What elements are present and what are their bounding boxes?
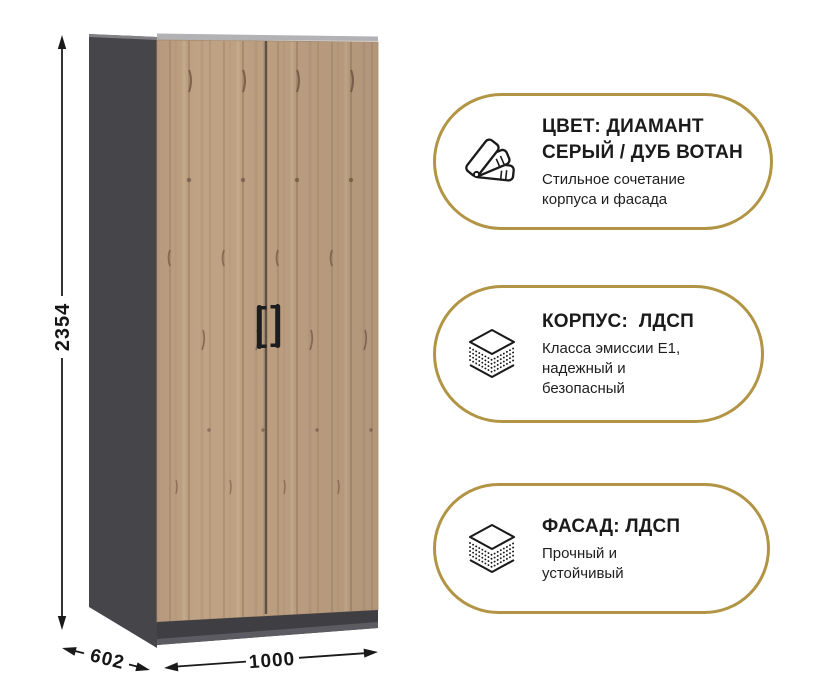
width-dimension-label: 1000 [248,649,296,673]
layers-icon [465,521,519,577]
layers-icon [465,326,519,382]
feature-badge-color: ЦВЕТ: ДИАМАНТ СЕРЫЙ / ДУБ ВОТАН Стильное… [433,93,773,230]
badge-text-block: ФАСАД: ЛДСП Прочный и устойчивый [542,514,702,584]
depth-dimension-label: 602 [88,645,127,674]
feature-badge-facade: ФАСАД: ЛДСП Прочный и устойчивый [433,483,770,614]
feature-badge-body: КОРПУС: ЛДСП Класса эмиссии Е1, надежный… [433,285,764,423]
badge-title: КОРПУС: ЛДСП [542,309,702,335]
wardrobe-side-panel [89,34,157,648]
badge-subtitle: Прочный и устойчивый [542,544,702,584]
badge-subtitle: Стильное сочетание корпуса и фасада [542,170,702,210]
height-dimension-label: 2354 [52,303,74,352]
badge-subtitle: Класса эмиссии Е1, надежный и безопасный [542,339,702,399]
badge-text-block: ЦВЕТ: ДИАМАНТ СЕРЫЙ / ДУБ ВОТАН Стильное… [542,114,752,210]
wardrobe-top-edge [157,34,378,42]
product-infographic: 2354 602 1000 [0,0,816,700]
color-swatches-icon [465,134,519,190]
badge-text-block: КОРПУС: ЛДСП Класса эмиссии Е1, надежный… [542,309,702,399]
badge-title: ЦВЕТ: ДИАМАНТ СЕРЫЙ / ДУБ ВОТАН [542,114,752,166]
wardrobe-doors [157,40,378,622]
badge-title: ФАСАД: ЛДСП [542,514,702,540]
